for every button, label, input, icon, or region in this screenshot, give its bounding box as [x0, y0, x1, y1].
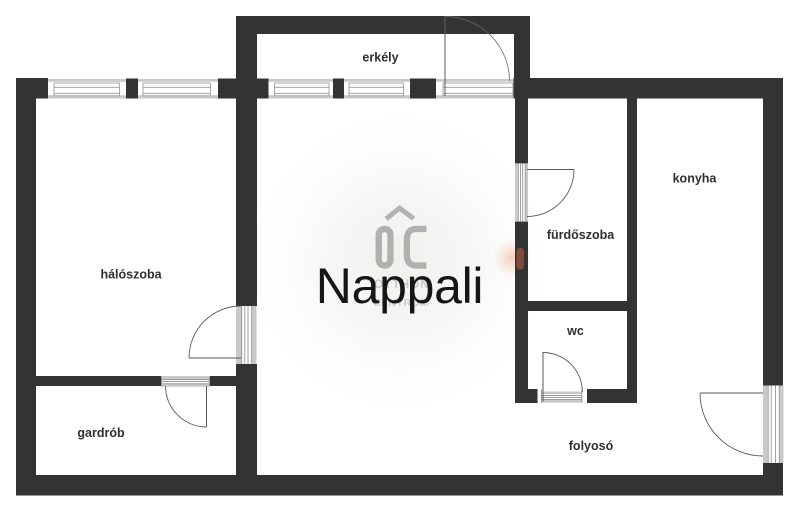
svg-text:fürdőszoba: fürdőszoba	[547, 228, 615, 242]
svg-text:folyosó: folyosó	[569, 439, 614, 453]
svg-text:Nappali: Nappali	[316, 258, 483, 314]
svg-text:erkély: erkély	[362, 51, 398, 65]
svg-text:gardrób: gardrób	[77, 426, 125, 440]
svg-text:hálószoba: hálószoba	[100, 268, 162, 282]
svg-text:wc: wc	[566, 324, 584, 338]
svg-text:konyha: konyha	[673, 172, 718, 186]
